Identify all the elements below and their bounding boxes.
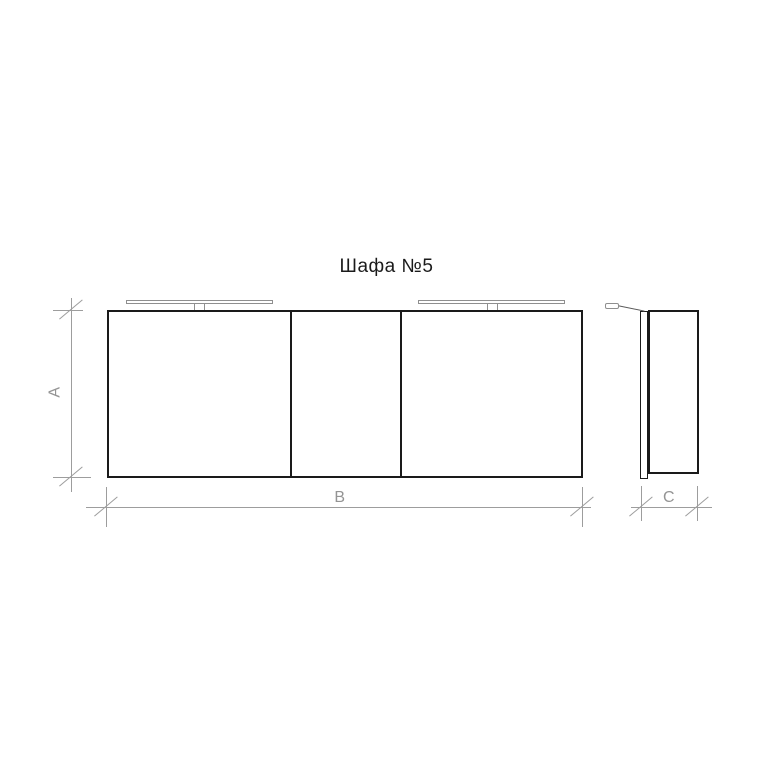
dimension-a-line <box>71 298 72 492</box>
dimension-c-line <box>631 507 712 508</box>
door-divider-left <box>290 312 292 476</box>
light-fixture-left-bracket <box>194 304 195 310</box>
light-fixture-side-arm <box>617 305 645 312</box>
dimension-a-label: A <box>47 386 65 397</box>
light-fixture-right-bar <box>418 300 565 304</box>
cabinet-side-outline <box>648 310 699 474</box>
dimension-c-label: C <box>649 489 689 507</box>
drawing-canvas: Шафа №5 A B <box>0 0 768 768</box>
light-fixture-side-head <box>605 303 619 309</box>
cabinet-front-outline <box>107 310 583 478</box>
dimension-b-line <box>86 507 591 508</box>
light-fixture-left-bar <box>126 300 273 304</box>
door-divider-right <box>400 312 402 476</box>
drawing-title: Шафа №5 <box>284 256 489 278</box>
cabinet-side-door <box>640 311 648 479</box>
light-fixture-left-bracket <box>204 304 205 310</box>
light-fixture-right-bracket <box>497 304 498 310</box>
dimension-a-extension-bottom <box>53 477 91 478</box>
light-fixture-right-bracket <box>487 304 488 310</box>
dimension-b-label: B <box>300 489 380 507</box>
